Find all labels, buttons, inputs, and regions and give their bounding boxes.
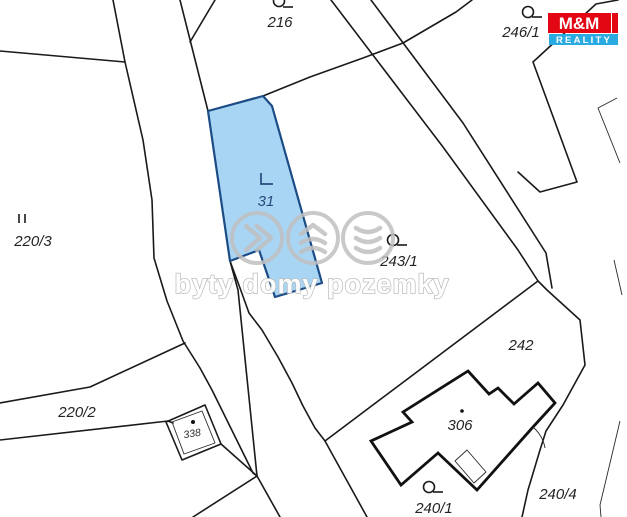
- boundary-220-2-lower: [0, 421, 173, 440]
- double-tick-icon: [19, 214, 25, 223]
- parcel-label-338: 338: [183, 427, 202, 442]
- parcel-label-306: 306: [447, 417, 473, 434]
- center-dot-icon: [460, 409, 464, 413]
- thin-boundary-mid-right: [614, 260, 622, 295]
- parcel-label-246-1: 246/1: [501, 24, 540, 41]
- parcel-point-icon: [274, 0, 294, 7]
- logo-mm-text: M&M: [559, 14, 600, 33]
- watermark-text: byty domy pozemky: [174, 269, 449, 299]
- boundary-220-2-upper: [0, 343, 185, 403]
- boundary-square-link: [221, 444, 257, 476]
- boundary-curve-243: [230, 261, 367, 517]
- parcel-point-icon: [424, 482, 444, 493]
- parcel-label-240-1: 240/1: [414, 500, 453, 517]
- thin-boundary-lower-right: [600, 421, 620, 517]
- parcel-label-242: 242: [507, 337, 534, 354]
- map-canvas[interactable]: 216 246/1 220/3 31 243/1 242 220/2 338 3…: [0, 0, 627, 517]
- cadastral-map[interactable]: 216 246/1 220/3 31 243/1 242 220/2 338 3…: [0, 0, 627, 517]
- parcel-label-31: 31: [258, 193, 275, 210]
- parcel-label-220-2: 220/2: [57, 404, 96, 421]
- boundary-junction-sw: [193, 476, 257, 517]
- center-dot-icon: [191, 420, 195, 424]
- road-right-edge-upper: [180, 0, 208, 111]
- parcel-point-icon: [523, 7, 543, 18]
- parcel-label-216: 216: [266, 14, 293, 31]
- logo-reality-text: REALITY: [556, 35, 612, 46]
- layers-down-icon: [343, 213, 393, 263]
- boundary-topleft: [0, 51, 125, 62]
- boundary-v-branch: [190, 0, 215, 42]
- parcel-label-220-3: 220/3: [13, 233, 52, 250]
- logo-red-strip: [612, 13, 618, 33]
- boundary-junction-se: [257, 476, 280, 517]
- parcel-label-240-4: 240/4: [538, 486, 577, 503]
- thin-boundary-upper-right: [598, 98, 620, 163]
- mm-reality-logo: M&M REALITY: [548, 13, 618, 46]
